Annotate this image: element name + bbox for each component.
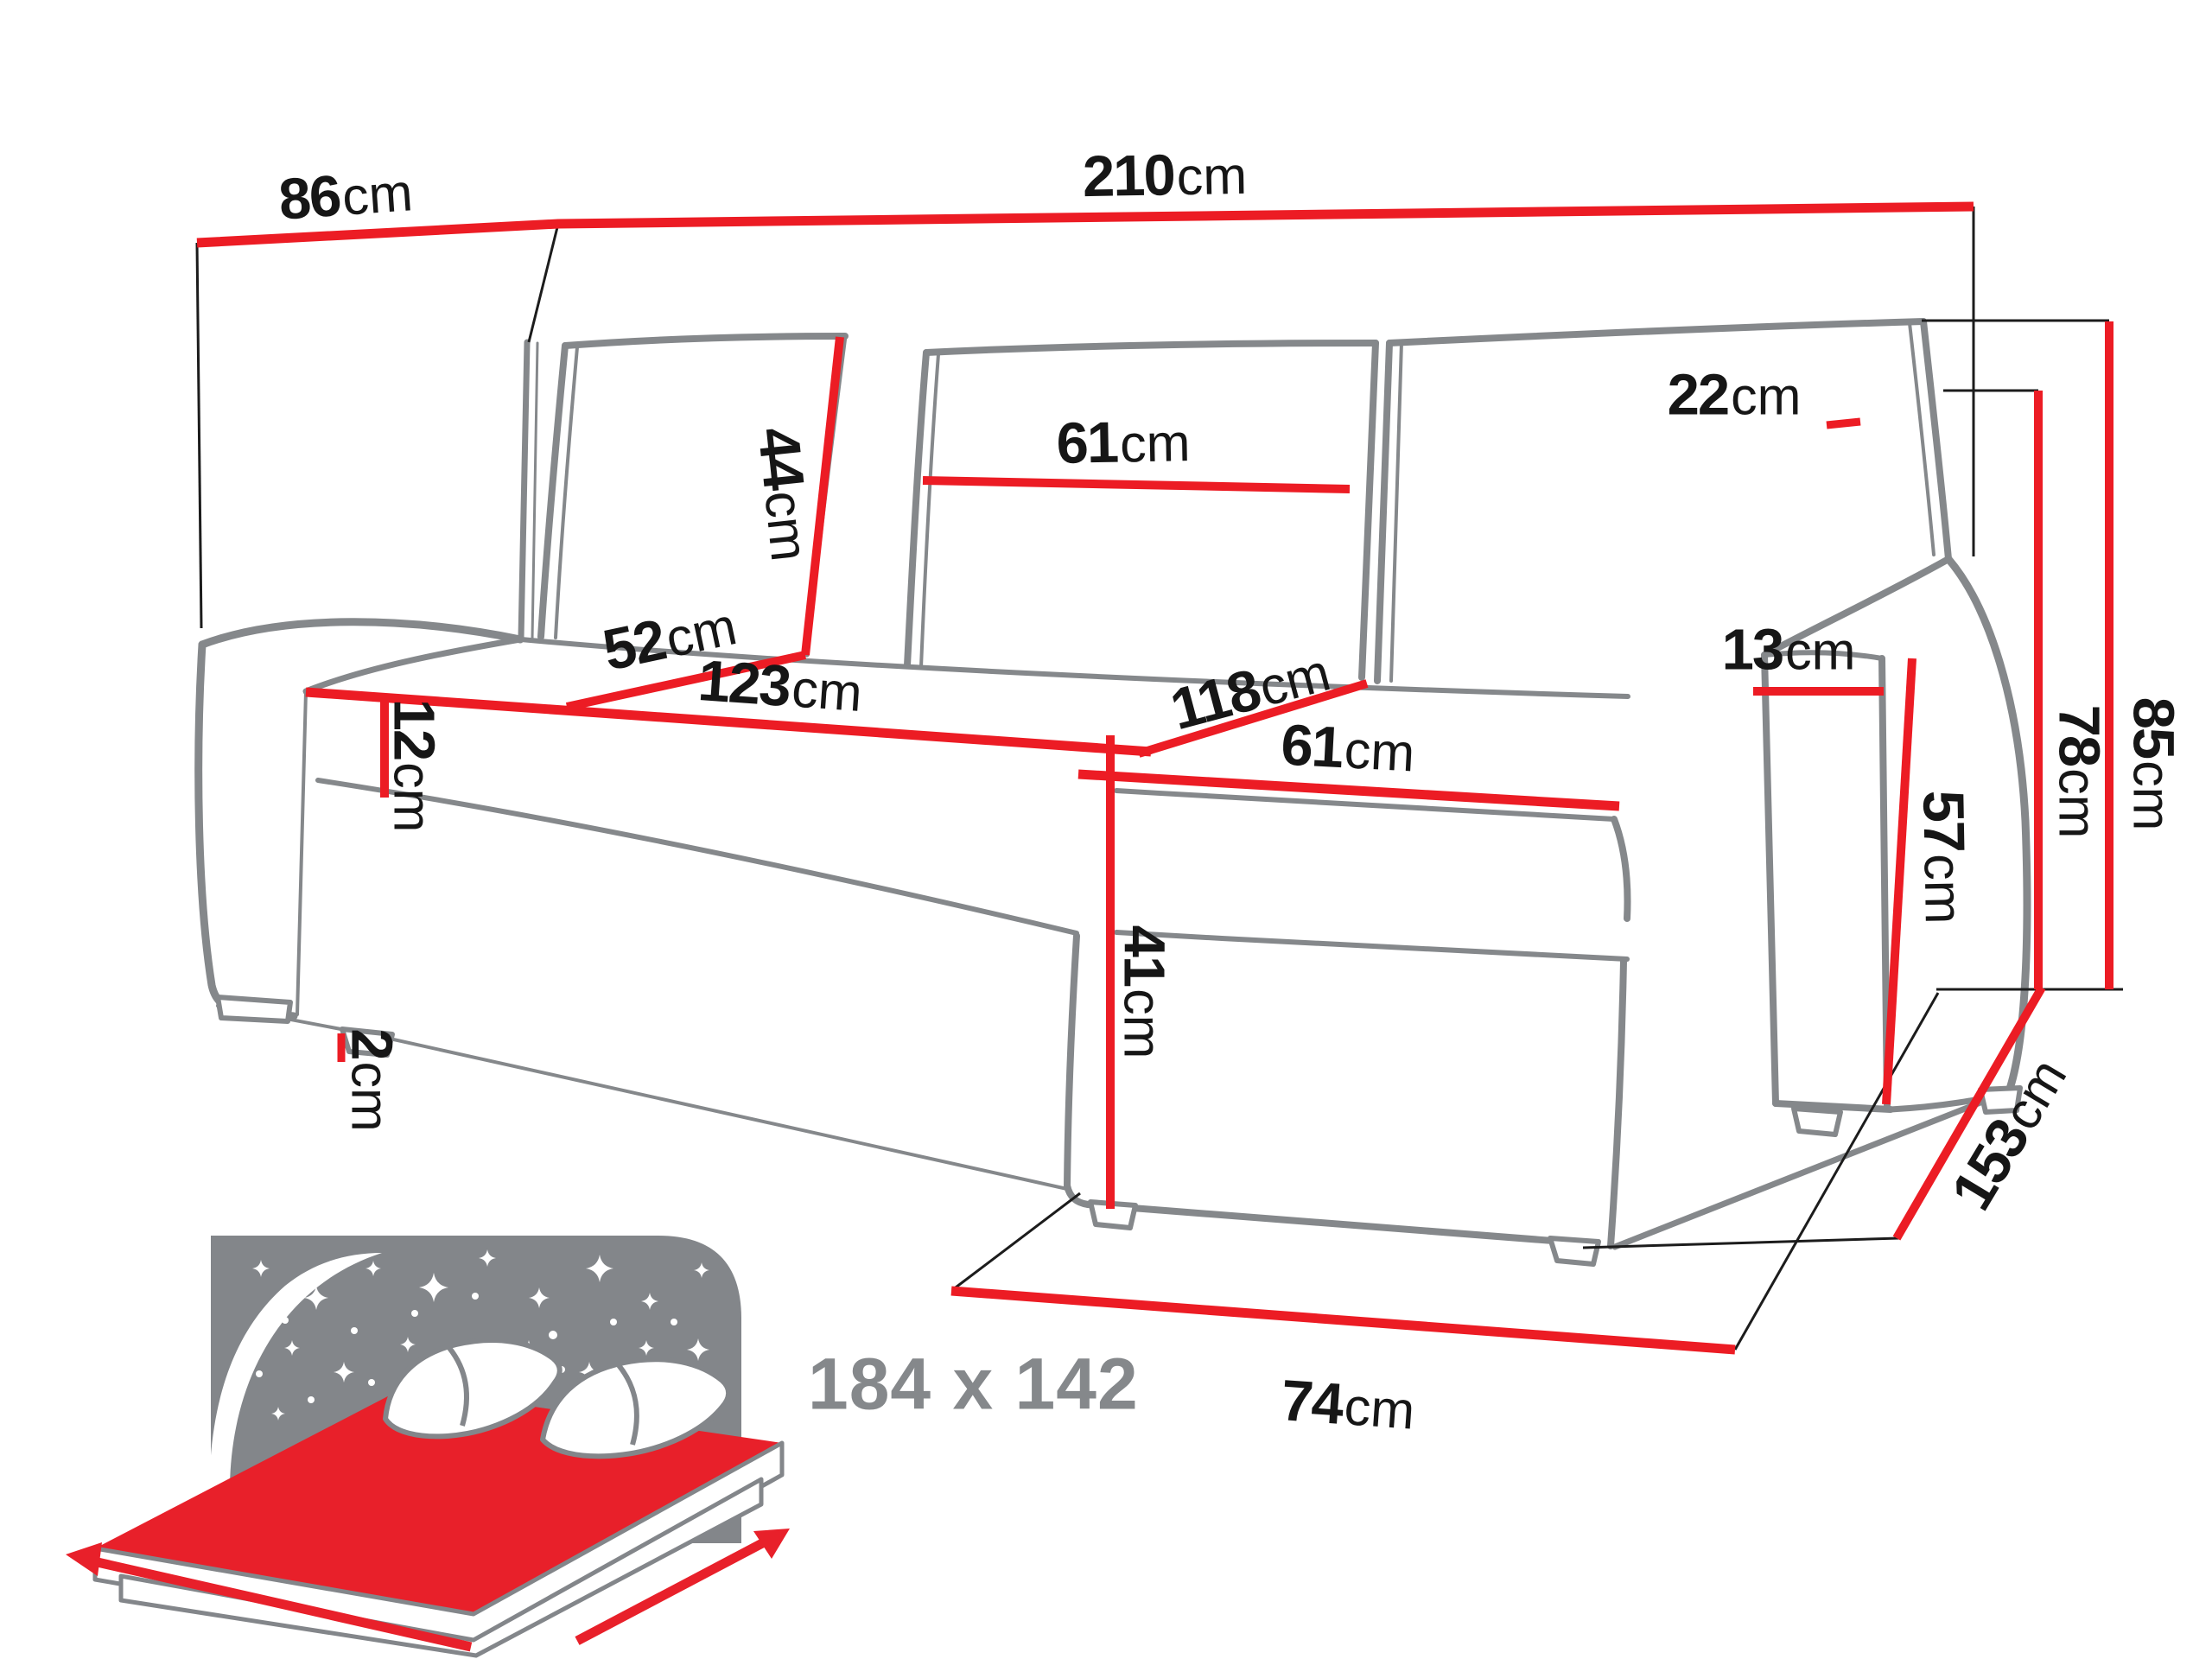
dimension-lines — [197, 207, 2109, 1350]
dim-label-seat-width: 123cm — [696, 652, 864, 721]
dim-line-86-210 — [197, 207, 1974, 243]
dim-line-57 — [1886, 658, 1912, 1104]
sleeping-function-icon — [66, 1236, 790, 1656]
cushion3-left-seam — [1391, 342, 1402, 681]
cushion2-right-edge — [1362, 343, 1376, 677]
dim-label-chaise-height: 41cm — [1116, 925, 1173, 1059]
dim-label-back-frame-height: 78cm — [2050, 705, 2108, 839]
dim-label-total-height: 85cm — [2125, 697, 2183, 831]
floor-line-front — [382, 1037, 1067, 1189]
extension-top-bend — [529, 224, 558, 342]
dim-tick-22 — [1827, 422, 1860, 425]
dim-label-leg-height: 2cm — [343, 1028, 401, 1132]
left-armrest-top-edge — [202, 622, 520, 645]
dim-label-backrest-thickness: 22cm — [1668, 366, 1802, 424]
dim-label-chaise-front-width: 74cm — [1279, 1371, 1416, 1439]
left-armrest-outer-edge — [199, 645, 294, 1016]
floor-right-edge-line — [1735, 993, 1938, 1350]
right-armrest-front-leg — [1794, 1109, 1840, 1135]
extension-74-left — [952, 1193, 1080, 1290]
dim-label-back-cushion-width: 61cm — [1056, 412, 1191, 473]
chaise-bottom-edge — [1088, 1205, 1586, 1243]
right-armrest-front-left-edge — [1764, 655, 1776, 1103]
chaise-cushion-right-corner — [1614, 819, 1627, 918]
cushion1-top-edge — [565, 336, 845, 346]
base-left-edge — [297, 691, 306, 1014]
back-frame-left-edge-inner — [532, 343, 537, 639]
dim-line-61-back — [923, 480, 1350, 489]
dim-line-74 — [951, 1291, 1735, 1350]
dim-label-width-total: 210cm — [1082, 145, 1247, 206]
extension-left — [197, 243, 201, 628]
cushion1-left-edge — [541, 346, 565, 637]
left-armrest-inner-edge — [306, 639, 520, 691]
chaise-right-leg — [1550, 1238, 1599, 1264]
dim-label-chaise-seat-width: 61cm — [1280, 715, 1416, 780]
sleeping-area-size-label: 184 x 142 — [808, 1343, 1139, 1427]
dim-label-armrest-width: 13cm — [1722, 621, 1856, 679]
cushion3-left-edge — [1377, 343, 1389, 681]
left-armrest-foot — [218, 997, 290, 1021]
dim-label-depth-top: 86cm — [276, 162, 414, 229]
dim-label-seat-edge-height: 12cm — [385, 699, 443, 833]
width-arrow-head — [66, 1542, 102, 1576]
chaise-front-left-edge — [1067, 936, 1077, 1185]
cushion2-top-edge — [926, 343, 1376, 353]
diagram-stage: 86cm 210cm 44cm 61cm 22cm 52cm 123cm 118… — [0, 0, 2212, 1659]
chaise-cushion-bottom-seam — [1116, 932, 1627, 959]
chaise-front-right-edge — [1611, 961, 1624, 1246]
dim-label-armrest-height: 57cm — [1914, 790, 1974, 925]
cushion3-top-edge — [1389, 321, 1923, 343]
cushion3-right-edge — [1923, 321, 1948, 559]
dim-label-backrest-height: 44cm — [749, 424, 821, 563]
back-frame-left-edge — [521, 342, 527, 639]
